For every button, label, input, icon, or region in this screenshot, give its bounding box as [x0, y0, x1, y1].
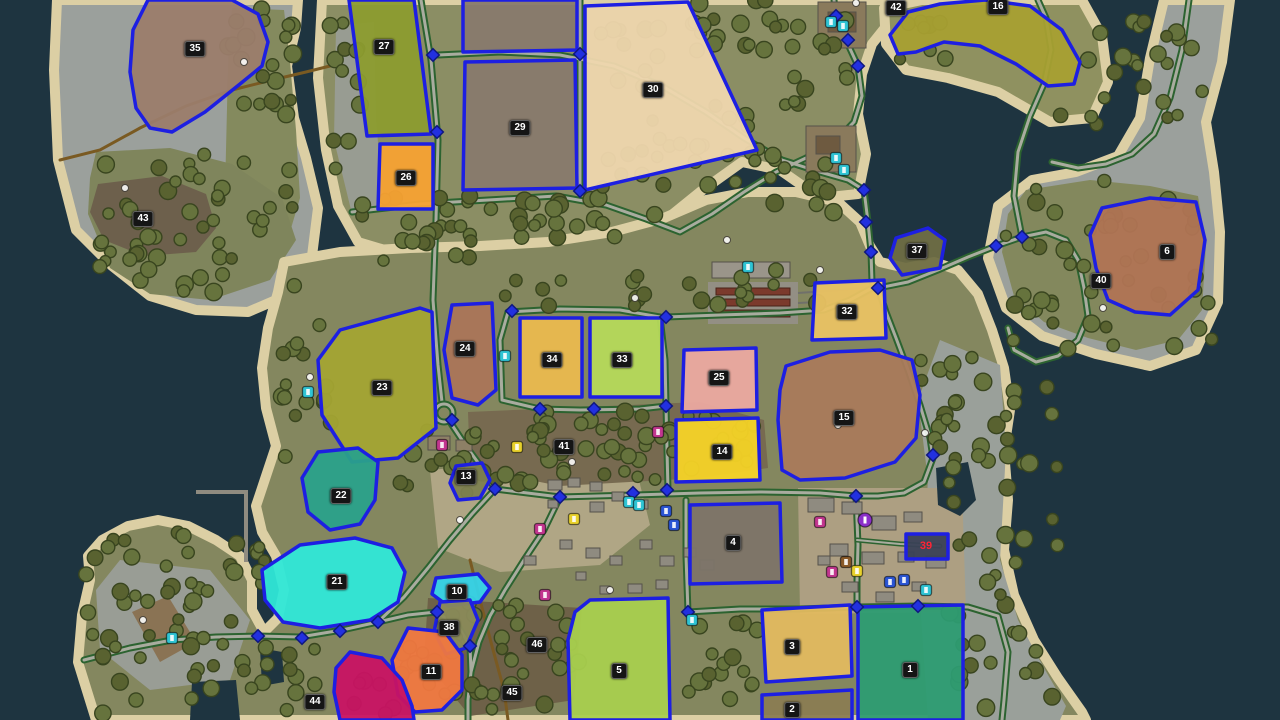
field-label-layer: 3527262930166373223243433251415132243921… — [0, 0, 1280, 720]
field-label-13[interactable]: 13 — [455, 469, 476, 485]
field-label-34[interactable]: 34 — [541, 352, 562, 368]
field-label-4[interactable]: 4 — [725, 535, 741, 551]
field-label-11[interactable]: 11 — [421, 664, 442, 680]
field-label-21[interactable]: 21 — [326, 574, 347, 590]
field-label-1[interactable]: 1 — [902, 662, 918, 678]
field-label-5[interactable]: 5 — [611, 663, 627, 679]
field-label-26[interactable]: 26 — [395, 170, 416, 186]
field-label-32[interactable]: 32 — [836, 304, 857, 320]
field-label-46[interactable]: 46 — [526, 637, 547, 653]
field-label-30[interactable]: 30 — [642, 82, 663, 98]
field-label-44[interactable]: 44 — [304, 694, 325, 710]
field-label-10[interactable]: 10 — [446, 584, 467, 600]
field-label-40[interactable]: 40 — [1090, 273, 1111, 289]
field-label-37[interactable]: 37 — [906, 243, 927, 259]
field-label-38[interactable]: 38 — [438, 620, 459, 636]
field-label-2[interactable]: 2 — [784, 702, 800, 718]
field-label-6[interactable]: 6 — [1159, 244, 1175, 260]
field-label-42[interactable]: 42 — [885, 0, 906, 16]
field-label-24[interactable]: 24 — [454, 341, 475, 357]
game-map-screen: 3527262930166373223243433251415132243921… — [0, 0, 1280, 720]
field-label-23[interactable]: 23 — [371, 380, 392, 396]
field-label-39[interactable]: 39 — [916, 539, 936, 553]
field-label-41[interactable]: 41 — [553, 439, 574, 455]
field-label-45[interactable]: 45 — [501, 685, 522, 701]
field-label-15[interactable]: 15 — [833, 410, 854, 426]
field-label-29[interactable]: 29 — [509, 120, 530, 136]
field-label-16[interactable]: 16 — [987, 0, 1008, 15]
field-label-35[interactable]: 35 — [184, 41, 205, 57]
field-label-25[interactable]: 25 — [708, 370, 729, 386]
field-label-3[interactable]: 3 — [784, 639, 800, 655]
field-label-33[interactable]: 33 — [611, 352, 632, 368]
field-label-43[interactable]: 43 — [132, 211, 153, 227]
field-label-14[interactable]: 14 — [711, 444, 732, 460]
field-label-22[interactable]: 22 — [330, 488, 351, 504]
field-label-27[interactable]: 27 — [373, 39, 394, 55]
